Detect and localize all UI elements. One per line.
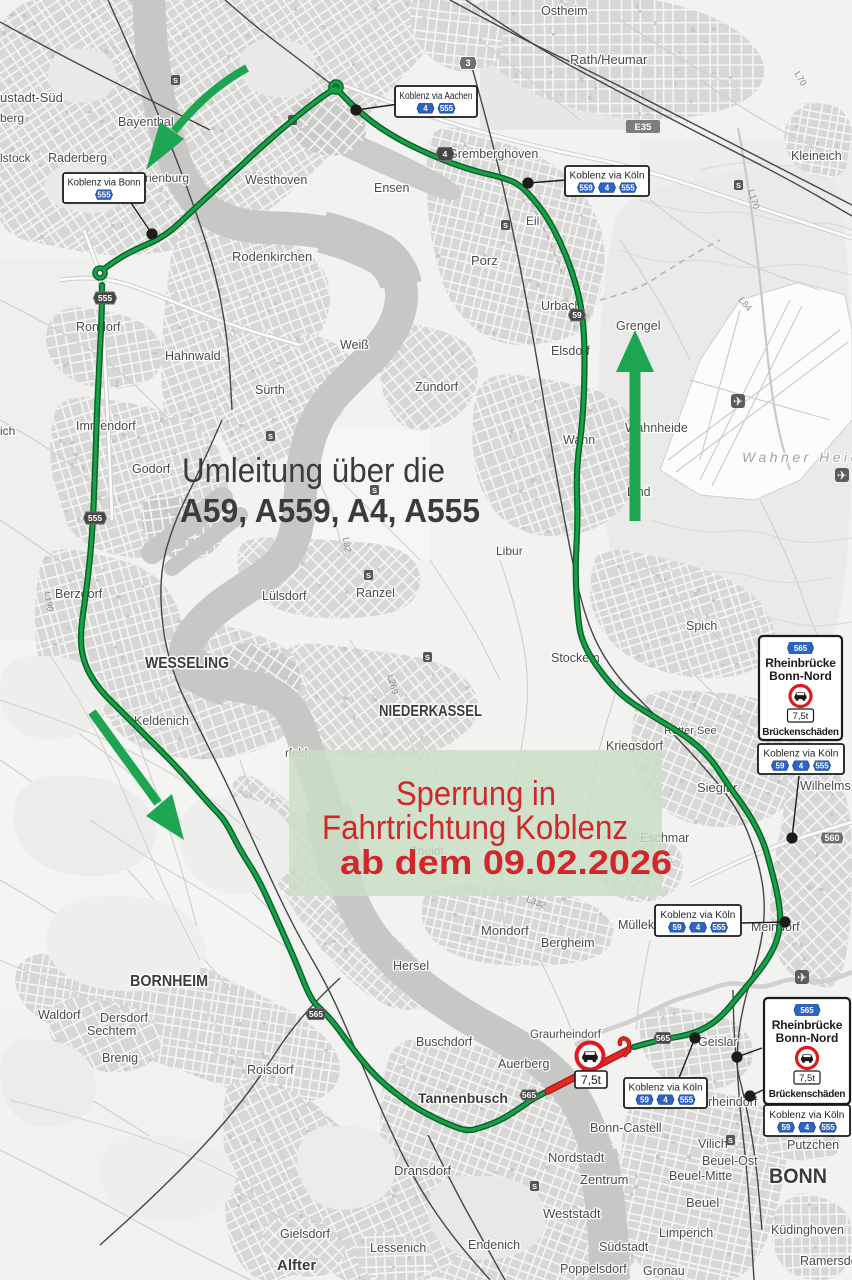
svg-text:Umleitung über die: Umleitung über die bbox=[182, 452, 445, 490]
svg-text:Brückenschäden: Brückenschäden bbox=[762, 727, 839, 738]
svg-text:59: 59 bbox=[776, 762, 785, 771]
svg-text:555: 555 bbox=[88, 513, 102, 523]
svg-text:Ramersdorf: Ramersdorf bbox=[800, 1254, 852, 1268]
svg-text:NIEDERKASSEL: NIEDERKASSEL bbox=[379, 703, 482, 720]
svg-text:59: 59 bbox=[782, 1123, 791, 1132]
svg-text:Hahnwald: Hahnwald bbox=[165, 349, 221, 363]
svg-text:555: 555 bbox=[440, 104, 454, 113]
svg-text:Brenig: Brenig bbox=[102, 1051, 138, 1065]
svg-text:Rheinbrücke: Rheinbrücke bbox=[772, 1018, 843, 1032]
svg-text:Wilhelms: Wilhelms bbox=[800, 779, 851, 793]
svg-text:Rath/Heumar: Rath/Heumar bbox=[570, 52, 648, 67]
svg-text:S: S bbox=[532, 1182, 537, 1191]
svg-text:Dersdorf: Dersdorf bbox=[100, 1011, 148, 1025]
svg-text:59: 59 bbox=[673, 923, 682, 932]
svg-text:S: S bbox=[268, 432, 273, 441]
svg-text:Beuel-Ost: Beuel-Ost bbox=[702, 1154, 758, 1168]
svg-text:Bergheim: Bergheim bbox=[541, 936, 595, 950]
svg-text:555: 555 bbox=[712, 923, 726, 932]
svg-text:BORNHEIM: BORNHEIM bbox=[130, 973, 208, 990]
svg-text:4: 4 bbox=[799, 762, 804, 771]
svg-text:Godorf: Godorf bbox=[132, 462, 171, 476]
svg-text:A59, A559, A4, A555: A59, A559, A4, A555 bbox=[180, 492, 480, 529]
svg-text:Gielsdorf: Gielsdorf bbox=[280, 1227, 331, 1241]
svg-text:Koblenz via Köln: Koblenz via Köln bbox=[769, 1110, 844, 1121]
svg-text:Dransdorf: Dransdorf bbox=[394, 1163, 451, 1178]
svg-text:S: S bbox=[736, 181, 741, 190]
svg-text:Limperich: Limperich bbox=[659, 1226, 713, 1240]
svg-text:S: S bbox=[366, 571, 371, 580]
svg-text:Berzdorf: Berzdorf bbox=[55, 587, 103, 601]
svg-text:Fahrtrichtung Koblenz: Fahrtrichtung Koblenz bbox=[322, 809, 628, 847]
svg-text:Lülsdorf: Lülsdorf bbox=[262, 589, 307, 603]
svg-text:Westhoven: Westhoven bbox=[245, 173, 307, 187]
svg-text:lstock: lstock bbox=[0, 151, 32, 165]
svg-text:berg: berg bbox=[0, 111, 24, 125]
svg-text:Sechtem: Sechtem bbox=[87, 1024, 136, 1038]
svg-text:Mondorf: Mondorf bbox=[481, 923, 529, 938]
svg-text:565: 565 bbox=[522, 1090, 536, 1100]
svg-text:Küdinghoven: Küdinghoven bbox=[771, 1223, 844, 1237]
svg-text:565: 565 bbox=[794, 644, 808, 653]
svg-text:Wahner Heid: Wahner Heid bbox=[742, 449, 852, 465]
svg-text:Zentrum: Zentrum bbox=[580, 1172, 628, 1187]
svg-text:E35: E35 bbox=[635, 122, 653, 133]
svg-text:Porz: Porz bbox=[471, 253, 498, 268]
svg-text:Zündorf: Zündorf bbox=[415, 380, 459, 394]
svg-text:Koblenz via Köln: Koblenz via Köln bbox=[629, 1083, 703, 1094]
svg-text:4: 4 bbox=[605, 184, 610, 193]
svg-text:Bonn-Nord: Bonn-Nord bbox=[776, 1031, 839, 1045]
svg-text:559: 559 bbox=[579, 184, 593, 193]
svg-text:WESSELING: WESSELING bbox=[145, 655, 229, 672]
svg-text:Poppelsdorf: Poppelsdorf bbox=[560, 1262, 627, 1276]
svg-text:7,5t: 7,5t bbox=[799, 1073, 815, 1084]
svg-text:Endenich: Endenich bbox=[468, 1238, 520, 1252]
svg-text:Koblenz via Aachen: Koblenz via Aachen bbox=[400, 91, 473, 102]
svg-text:✈: ✈ bbox=[797, 971, 807, 985]
svg-text:Lessenich: Lessenich bbox=[370, 1241, 426, 1255]
svg-text:7,5t: 7,5t bbox=[581, 1073, 602, 1087]
svg-text:4: 4 bbox=[805, 1123, 810, 1132]
svg-text:Sürth: Sürth bbox=[255, 383, 285, 397]
svg-text:555: 555 bbox=[680, 1096, 694, 1105]
svg-text:Buschdorf: Buschdorf bbox=[416, 1035, 473, 1049]
svg-text:Graurheindorf: Graurheindorf bbox=[530, 1029, 602, 1041]
svg-text:Grengel: Grengel bbox=[616, 319, 660, 333]
svg-text:Sperrung in: Sperrung in bbox=[396, 775, 556, 813]
svg-text:Hersel: Hersel bbox=[393, 959, 429, 973]
svg-text:BONN: BONN bbox=[769, 1165, 827, 1188]
svg-text:ab dem 09.02.2026: ab dem 09.02.2026 bbox=[340, 844, 672, 882]
svg-text:4: 4 bbox=[423, 104, 428, 113]
svg-text:Roisdorf: Roisdorf bbox=[247, 1063, 294, 1077]
svg-text:565: 565 bbox=[309, 1009, 323, 1019]
svg-text:✈: ✈ bbox=[837, 469, 847, 483]
svg-text:59: 59 bbox=[640, 1096, 649, 1105]
svg-text:Koblenz via Köln: Koblenz via Köln bbox=[660, 910, 735, 921]
svg-text:Ostheim: Ostheim bbox=[541, 4, 588, 18]
svg-text:Libur: Libur bbox=[496, 544, 523, 558]
svg-text:S: S bbox=[503, 221, 508, 230]
svg-text:555: 555 bbox=[621, 184, 635, 193]
svg-text:555: 555 bbox=[97, 191, 111, 200]
svg-text:Bonn-Nord: Bonn-Nord bbox=[769, 669, 832, 683]
svg-text:Rodenkirchen: Rodenkirchen bbox=[232, 249, 312, 264]
svg-text:Geislar: Geislar bbox=[698, 1035, 738, 1049]
svg-text:Nordstadt: Nordstadt bbox=[548, 1150, 605, 1165]
svg-text:Ensen: Ensen bbox=[374, 181, 409, 195]
svg-text:Weiß: Weiß bbox=[340, 338, 369, 352]
svg-text:3: 3 bbox=[465, 58, 470, 68]
svg-text:555: 555 bbox=[98, 293, 112, 303]
svg-text:555: 555 bbox=[815, 762, 829, 771]
svg-text:4: 4 bbox=[443, 149, 448, 159]
svg-text:Koblenz via Köln: Koblenz via Köln bbox=[763, 749, 838, 760]
svg-text:Eil: Eil bbox=[526, 214, 539, 228]
svg-text:Gronau: Gronau bbox=[643, 1264, 685, 1278]
svg-text:ustadt-Süd: ustadt-Süd bbox=[0, 90, 63, 105]
svg-text:S: S bbox=[425, 653, 430, 662]
svg-text:565: 565 bbox=[800, 1006, 814, 1015]
svg-text:S: S bbox=[173, 76, 178, 85]
svg-text:565: 565 bbox=[656, 1033, 670, 1043]
svg-text:Tannenbusch: Tannenbusch bbox=[418, 1090, 508, 1106]
svg-text:Keldenich: Keldenich bbox=[134, 714, 189, 728]
svg-text:Weststadt: Weststadt bbox=[543, 1206, 601, 1221]
svg-text:S: S bbox=[728, 1136, 733, 1145]
svg-text:✈: ✈ bbox=[733, 395, 743, 409]
svg-text:Beuel: Beuel bbox=[686, 1195, 719, 1210]
svg-text:555: 555 bbox=[821, 1123, 835, 1132]
svg-text:Koblenz via Bonn: Koblenz via Bonn bbox=[68, 178, 141, 189]
svg-text:rienburg: rienburg bbox=[145, 171, 189, 185]
svg-text:4: 4 bbox=[663, 1096, 668, 1105]
svg-text:59: 59 bbox=[572, 310, 582, 320]
svg-text:560: 560 bbox=[824, 833, 839, 843]
svg-text:L82: L82 bbox=[341, 536, 353, 552]
svg-text:Auerberg: Auerberg bbox=[498, 1057, 549, 1071]
svg-text:Waldorf: Waldorf bbox=[38, 1008, 81, 1022]
svg-text:Putzchen: Putzchen bbox=[787, 1138, 839, 1152]
svg-text:Vilich: Vilich bbox=[698, 1137, 728, 1151]
svg-text:4: 4 bbox=[696, 923, 701, 932]
svg-text:Koblenz via Köln: Koblenz via Köln bbox=[570, 171, 645, 182]
svg-text:7,5t: 7,5t bbox=[793, 711, 809, 722]
svg-text:Ranzel: Ranzel bbox=[356, 586, 395, 600]
svg-text:Gremberghoven: Gremberghoven bbox=[448, 147, 538, 161]
svg-text:ich: ich bbox=[0, 424, 15, 438]
svg-text:Raderberg: Raderberg bbox=[48, 151, 107, 165]
svg-text:Alfter: Alfter bbox=[277, 1257, 316, 1274]
svg-text:Spich: Spich bbox=[686, 619, 717, 633]
svg-text:Immendorf: Immendorf bbox=[76, 419, 136, 433]
svg-text:Kleineich: Kleineich bbox=[791, 149, 842, 163]
svg-text:Beuel-Mitte: Beuel-Mitte bbox=[669, 1169, 732, 1183]
svg-text:Rheinbrücke: Rheinbrücke bbox=[765, 656, 836, 670]
svg-text:Bonn-Castell: Bonn-Castell bbox=[590, 1121, 662, 1135]
svg-text:Brückenschäden: Brückenschäden bbox=[769, 1089, 846, 1100]
svg-text:Südstadt: Südstadt bbox=[599, 1240, 649, 1254]
